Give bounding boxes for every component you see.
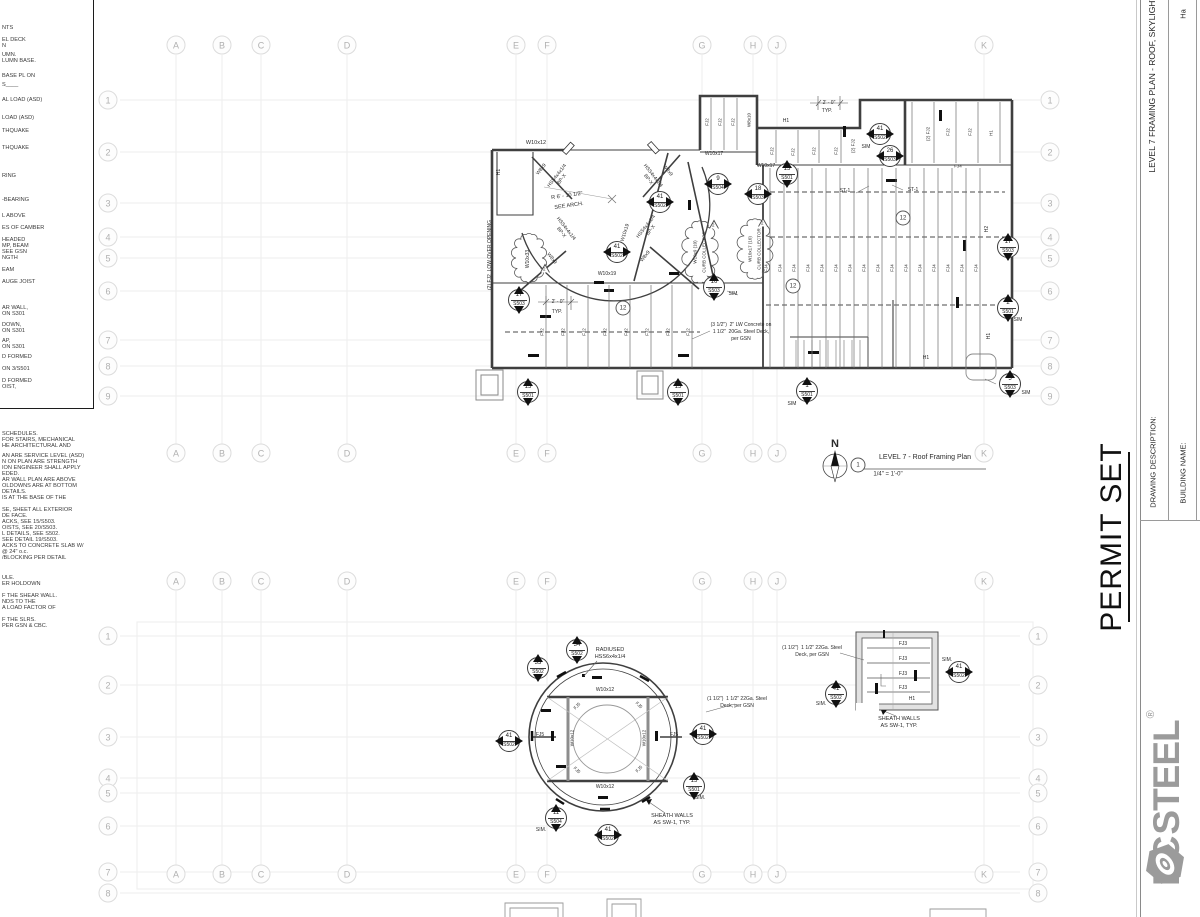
detail-bubble: 33S502 [527,657,549,679]
note-line: A LOAD FACTOR OF [2,605,56,611]
plan-title: LEVEL 7 - Roof Framing Plan [879,454,971,462]
section-cut-triangle-icon [886,129,899,139]
plan-label: (1 1/2") 1 1/2" 22Ga. Steel [782,646,842,652]
detail-bubble: 41S502 [692,723,714,745]
plan-label: ST-1 [840,189,851,195]
plan-label: TYP. [552,310,562,316]
note-line: RING [2,173,16,179]
section-cut-triangle-icon [1005,365,1015,378]
detail-bubble: 15S501 [683,775,705,797]
detail-bubble: 9S504 [707,173,729,195]
joist-label: FJ2 [644,328,649,336]
section-cut-triangle-icon [673,373,683,386]
plan-title-bubble: 1 [851,458,866,473]
joist-label: FJ4 [875,264,880,272]
grid-letter-bubble: C [252,444,271,463]
plan-label: FJ4 [954,163,962,168]
section-cut-triangle-icon [709,729,722,739]
section-cut-triangle-icon [831,675,841,688]
grid-letter-bubble: D [338,444,357,463]
note-line: ES OF CAMBER [2,225,44,231]
plan-label: H2 [985,226,991,232]
section-cut-triangle-icon [724,179,737,189]
plan-label: W10x9 (10) [692,240,697,263]
plan-label: H1 [909,697,915,703]
grid-letter-bubble: D [338,36,357,55]
note-line: THQUAKE [2,128,29,134]
plan-label: per GSN [731,337,750,343]
grid-number-bubble: 9 [1041,387,1060,406]
partial-project-text: Ha [1179,9,1188,19]
section-cut-triangle-icon [1003,253,1013,266]
grid-number-bubble: 3 [1041,194,1060,213]
plan-label: W10x17 (10) [747,236,752,262]
detail-bubble: 41S502 [825,683,847,705]
grid-number-bubble: 1 [99,91,118,110]
north-arrow-icon [823,450,847,482]
hex-nut-icon [1143,842,1187,886]
titleblock-border [1140,0,1141,917]
permit-set-underline [1128,452,1130,622]
grid-number-bubble: 1 [99,627,118,646]
grid-letter-bubble: G [693,444,712,463]
plan-label: W10x19 [598,272,616,278]
note-line: BASE PL ON [2,73,35,79]
note-line: L ABOVE [2,213,25,219]
plan-label: 2' - 0" [552,300,565,306]
plan-label: H1 [783,119,789,125]
grid-letter-bubble: K [975,572,994,591]
grid-letter-bubble: E [507,444,526,463]
grid-letter-bubble: J [768,572,787,591]
note-line: HE ARCHITECTURAL AND [2,443,71,449]
plan-label: W10x12 [526,140,546,146]
joist-label: FJ4 [777,264,782,272]
joist-label: FJ2 [623,328,628,336]
grid-letter-bubble: A [167,865,186,884]
joist-label: FJ4 [805,264,810,272]
section-cut-triangle-icon [515,736,528,746]
note-line: EAM [2,267,14,273]
roof-curb-outlines [476,370,663,400]
plan-label: H1 [988,130,993,136]
section-cut-triangle-icon [641,197,654,207]
keynote-circle: 12 [616,301,631,316]
plan-label: W10x12 [569,730,574,747]
joist-label: FJ2 [581,328,586,336]
section-cut-triangle-icon [709,268,719,281]
note-line: ER HOLDOWN [2,581,41,587]
joist-label: FJ2 [539,328,544,336]
detail-bubble: 15S501 [776,163,798,185]
detail-bubble: 17S503 [997,236,1019,258]
grid-letter-bubble: A [167,36,186,55]
detail-bubble: 41S502 [498,730,520,752]
section-cut-triangle-icon [614,830,627,840]
plan-label: (3 1/2") 2" LW Concrete on [711,323,772,329]
plan-label: W10x33 [526,250,532,268]
section-cut-triangle-icon [514,306,524,319]
permit-set-stamp: PERMIT SET [1095,442,1129,631]
plan-label: Deck, per GSN [795,653,829,659]
section-cut-triangle-icon [739,189,752,199]
section-cut-triangle-icon [551,824,561,837]
grid-letter-bubble: F [538,572,557,591]
grid-letter-bubble: F [538,865,557,884]
grid-number-bubble: 2 [99,143,118,162]
plan-label: FJ2 [717,118,722,126]
detail-bubble: 15S501 [517,381,539,403]
detail-bubble: 26S503 [879,145,901,167]
section-cut-triangle-icon [831,700,841,713]
titleblock-divider [1168,0,1169,520]
joist-label: FJ4 [931,264,936,272]
plan-label: SHEATH WALLS [651,813,693,819]
plan-label: H1 [987,333,993,339]
grid-number-bubble: 5 [1041,249,1060,268]
detail-bubble: 16S503 [703,276,725,298]
plan-label: (1 1/2") 1 1/2" 22Ga. Steel [707,697,767,703]
plan-label: (2) FJ2 [925,127,930,141]
grid-letter-bubble: H [744,444,763,463]
footing-outlines [505,899,986,917]
grid-number-bubble: 6 [1029,817,1048,836]
plan-label: W10x17 [757,164,775,170]
grid-letter-bubble: K [975,36,994,55]
grid-letter-bubble: C [252,36,271,55]
plan-label: SIM [1014,318,1023,324]
grid-number-bubble: 6 [99,282,118,301]
plan-label: FJ2 [704,118,709,126]
note-line: S____ [2,82,18,88]
detail-bubble: 18S503 [747,183,769,205]
keynote-circle: 12 [896,211,911,226]
grid-letter-bubble: A [167,444,186,463]
plan-label: W10x12 [596,785,614,791]
note-line: OIST, [2,384,16,390]
north-label: N [831,438,839,450]
joist-label: FJ4 [833,264,838,272]
grid-number-bubble: 6 [99,817,118,836]
plan-label: ST-1 [908,188,919,194]
grid-letter-bubble: C [252,865,271,884]
grid-number-bubble: 3 [1029,728,1048,747]
grid-letter-bubble: H [744,865,763,884]
grid-number-bubble: 5 [99,784,118,803]
plan-label: W10x12 [596,688,614,694]
grid-letter-bubble: F [538,444,557,463]
plan-label: FJ2 [811,147,816,155]
grid-number-bubble: 5 [99,249,118,268]
plan-label: W10x17 [705,152,723,158]
plan-label: AS SW-1, TYP. [881,723,918,729]
plan-label: SHEATH WALLS [878,716,920,722]
section-cut-triangle-icon [572,656,582,669]
section-cut-triangle-icon [764,189,777,199]
plan-label: FJ5 [670,733,678,739]
section-cut-triangle-icon [940,667,953,677]
drawing-description-label: DRAWING DESCRIPTION: [1149,416,1158,507]
note-line: ON S301 [2,311,25,317]
detail-bubble: 41S502 [649,191,671,213]
detail-bubble: 5S503 [999,373,1021,395]
grid-number-bubble: 1 [1041,91,1060,110]
plan-label: RADIUSED [596,647,624,653]
keynote-circle: 12 [786,279,801,294]
plan-scale: 1/4" = 1'-0" [873,472,902,479]
section-cut-triangle-icon [572,631,582,644]
titleblock-divider-2 [1196,0,1197,520]
grid-number-bubble: 8 [1041,357,1060,376]
grid-letter-bubble: C [252,572,271,591]
plan-label: 2' - 0" [823,101,836,107]
note-line: D FORMED [2,354,32,360]
grid-letter-bubble: J [768,444,787,463]
joist-label: FJ4 [959,264,964,272]
detail-bubble: 11S504 [545,807,567,829]
joist-label: FJ4 [945,264,950,272]
note-line: N [2,43,6,49]
grid-letter-bubble: G [693,36,712,55]
joist-label: FJ2 [602,328,607,336]
plan-label: W8x10 [746,113,751,127]
section-cut-triangle-icon [871,151,884,161]
grid-letter-bubble: H [744,36,763,55]
joist-label: FJ2 [685,328,690,336]
detail-bubble: 41S502 [948,661,970,683]
grid-number-bubble: 6 [1041,282,1060,301]
note-line: ON 3/S501 [2,366,30,372]
grid-number-bubble: 8 [99,357,118,376]
grid-letter-bubble: E [507,36,526,55]
grid-letter-bubble: D [338,572,357,591]
plan-label: W10x12 [641,730,646,747]
section-cut-triangle-icon [623,247,636,257]
detail-bubble: 41S502 [606,241,628,263]
section-cut-triangle-icon [965,667,978,677]
plan-label: SIM [1022,391,1031,397]
section-cut-triangle-icon [782,155,792,168]
registered-mark: ® [1145,710,1157,718]
joist-label: FJ2 [560,328,565,336]
grid-number-bubble: 7 [99,331,118,350]
section-cut-triangle-icon [533,674,543,687]
grid-letter-bubble: K [975,865,994,884]
section-cut-triangle-icon [598,247,611,257]
joist-label: FJ4 [791,264,796,272]
joist-label: FJ4 [973,264,978,272]
grid-number-bubble: 2 [1029,676,1048,695]
section-cut-triangle-icon [490,736,503,746]
detail-bubble: 41S502 [597,824,619,846]
revision-delta-icon: 2 [758,218,768,227]
section-cut-triangle-icon [1003,228,1013,241]
grid-letter-bubble: B [213,36,232,55]
joist-label: FJ2 [665,328,670,336]
drawing-sheet: NTSEL DECKNUMN.LUMN BASE.BASE PL ONS____… [0,0,1200,917]
plan-label: AS SW-1, TYP. [654,820,691,826]
plan-label: (2) FJ2 [850,139,855,153]
note-line: /BLOCKING PER DETAIL [2,555,66,561]
plan-label: H1 [497,169,503,175]
plan-label: H1 [923,356,929,362]
grid-number-bubble: 9 [99,387,118,406]
building-name-label: BUILDING NAME: [1179,442,1188,503]
grid-letter-bubble: G [693,865,712,884]
joist-label: FJ4 [889,264,894,272]
note-line: THQUAKE [2,145,29,151]
revision-delta-icon: 2 [540,264,550,273]
grid-number-bubble: 3 [99,194,118,213]
section-cut-triangle-icon [666,197,679,207]
revision-delta-icon: 2 [709,220,719,229]
plan-label: FJ2 [967,128,972,136]
plan-label: FJ5 [536,733,544,739]
section-cut-triangle-icon [861,129,874,139]
grid-letter-bubble: B [213,572,232,591]
section-cut-triangle-icon [523,398,533,411]
grid-letter-bubble: A [167,572,186,591]
section-cut-triangle-icon [782,180,792,193]
section-cut-triangle-icon [673,398,683,411]
section-cut-triangle-icon [589,830,602,840]
joist-label: FJ4 [861,264,866,272]
note-line: -BEARING [2,197,29,203]
plan-label: SIM. [536,828,546,834]
section-cut-triangle-icon [514,281,524,294]
plan-label: 1 1/2" 20Ga. Steel Deck, [713,330,769,336]
grid-number-bubble: 7 [1041,331,1060,350]
grid-letter-bubble: B [213,865,232,884]
plan-label: CURB COLLECTOR [756,228,761,269]
joist-label: FJ4 [903,264,908,272]
plan-label: SIM [788,402,797,408]
detail-bubble: 15S501 [667,381,689,403]
plan-label: FJ2 [833,147,838,155]
joist-label: FJ4 [917,264,922,272]
detail-bubble: 2S501 [997,297,1019,319]
grid-letter-bubble: G [693,572,712,591]
plan-label: SIM [862,145,871,151]
grid-number-bubble: 4 [1041,228,1060,247]
grid-number-bubble: 4 [99,228,118,247]
joist-label: FJ4 [763,264,768,272]
section-cut-triangle-icon [709,293,719,306]
grid-number-bubble: 5 [1029,784,1048,803]
detail-bubble: 34S502 [566,639,588,661]
note-line: LOAD (ASD) [2,115,34,121]
section-cut-triangle-icon [896,151,909,161]
plan-label: FJ2 [730,118,735,126]
section-cut-triangle-icon [533,649,543,662]
grid-number-bubble: 2 [1041,143,1060,162]
section-cut-triangle-icon [523,373,533,386]
grid-letter-bubble: J [768,865,787,884]
note-line: PER GSN & CBC. [2,623,47,629]
plan-label: FJ3 [899,657,907,663]
detail-bubble: 41S502 [869,123,891,145]
plan-label: HSS6x4x1/4 [595,654,626,660]
detail-bubble: 1S501 [796,380,818,402]
sheet-border-inner [1136,0,1137,917]
grid-letter-bubble: F [538,36,557,55]
note-line: NTS [2,25,13,31]
note-line: LUMN BASE. [2,58,36,64]
grid-letter-bubble: B [213,444,232,463]
grid-letter-bubble: J [768,36,787,55]
plan-label: FJ2 [945,128,950,136]
plan-label: FJ3 [899,686,907,692]
plan-label: (2) FJ2 LOW OVER OPENING [488,220,494,290]
note-line: NGTH [2,255,18,261]
grid-number-bubble: 1 [1029,627,1048,646]
logo-text-steel: STEEL [1146,720,1188,834]
section-cut-triangle-icon [689,792,699,805]
plan-label: FJ3 [899,672,907,678]
titleblock-hline [1140,520,1200,521]
joist-label: FJ4 [847,264,852,272]
grid-number-bubble: 3 [99,728,118,747]
section-cut-triangle-icon [551,799,561,812]
sheet-title-vertical: LEVEL 7 FRAMING PLAN - ROOF, SKYLIGHT [1147,0,1157,173]
grid-number-bubble: 8 [99,884,118,903]
section-cut-triangle-icon [1003,289,1013,302]
note-line: ON S301 [2,328,25,334]
grid-number-bubble: 7 [99,863,118,882]
plan-label: CURB COLLECTOR [701,231,706,272]
grid-letter-bubble: E [507,572,526,591]
section-cut-triangle-icon [802,397,812,410]
joist-label: FJ4 [819,264,824,272]
grid-letter-bubble: D [338,865,357,884]
section-cut-triangle-icon [1003,314,1013,327]
grid-number-bubble: 8 [1029,884,1048,903]
section-cut-triangle-icon [689,767,699,780]
section-cut-triangle-icon [699,179,712,189]
grid-number-bubble: 2 [99,676,118,695]
grid-letter-bubble: H [744,572,763,591]
section-cut-triangle-icon [684,729,697,739]
note-line: ON S301 [2,344,25,350]
detail-bubble: 17S503 [508,289,530,311]
section-cut-triangle-icon [1005,390,1015,403]
note-line: AL LOAD (ASD) [2,97,42,103]
plan-label: FJ3 [899,642,907,648]
plan-label: FJ2 [769,147,774,155]
grid-letter-bubble: K [975,444,994,463]
note-line: IS AT THE BASE OF THE [2,495,66,501]
note-line: AUGE JOIST [2,279,35,285]
ecosteel-logo: EC STEEL ® [1143,636,1191,886]
grid-letter-bubble: E [507,865,526,884]
plan-label: SIM [729,292,738,298]
plan-label: Deck, per GSN [720,704,754,710]
section-cut-triangle-icon [802,372,812,385]
grid-number-bubble: 7 [1029,863,1048,882]
plan-label: TYP. [822,109,832,115]
